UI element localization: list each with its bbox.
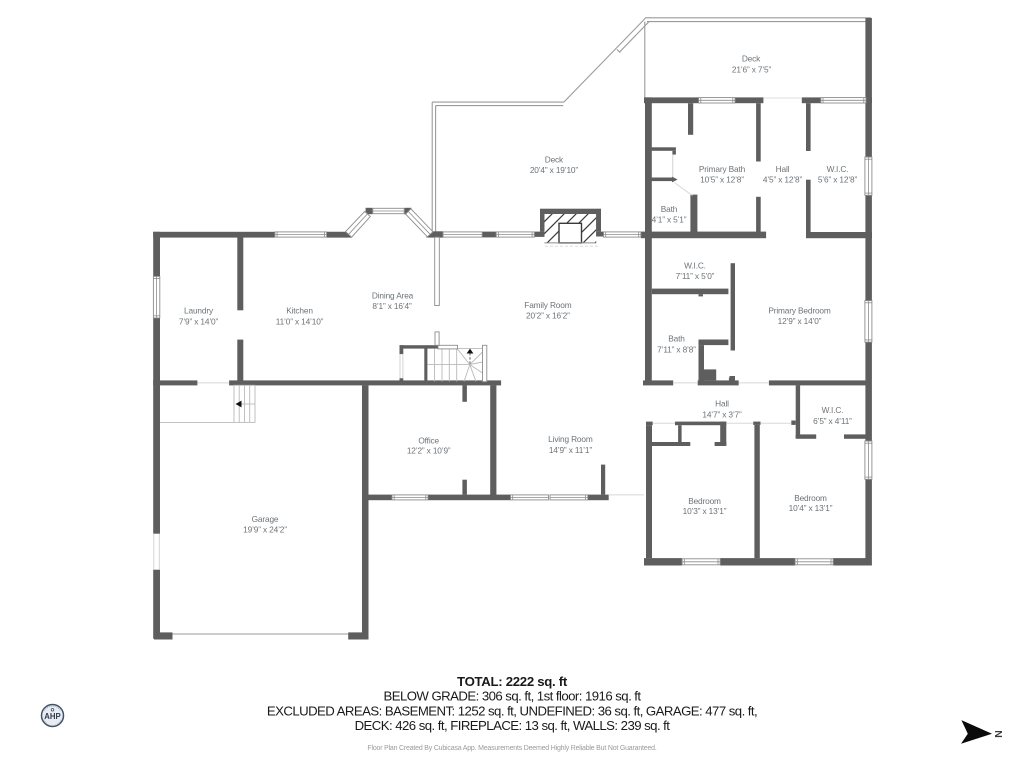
svg-text:14’7” x 3’7”: 14’7” x 3’7” xyxy=(702,409,742,419)
svg-text:8’1” x 16’4”: 8’1” x 16’4” xyxy=(372,301,412,311)
svg-text:10’3” x 13’1”: 10’3” x 13’1” xyxy=(683,506,727,516)
svg-text:W.I.C.: W.I.C. xyxy=(822,405,844,415)
svg-text:Floor Plan Created By Cubicasa: Floor Plan Created By Cubicasa App. Meas… xyxy=(367,745,656,752)
svg-text:Living Room: Living Room xyxy=(548,434,593,444)
svg-text:DECK: 426 sq. ft, FIREPLACE: 1: DECK: 426 sq. ft, FIREPLACE: 13 sq. ft, … xyxy=(355,718,671,733)
svg-text:Garage: Garage xyxy=(252,514,279,524)
svg-text:12’9” x 14’0”: 12’9” x 14’0” xyxy=(778,316,822,326)
svg-text:7’11” x 5’0”: 7’11” x 5’0” xyxy=(676,271,715,281)
svg-text:Bedroom: Bedroom xyxy=(794,493,827,503)
svg-text:W.I.C.: W.I.C. xyxy=(827,164,849,174)
svg-text:Hall: Hall xyxy=(776,164,790,174)
svg-text:19’9” x 24’2”: 19’9” x 24’2” xyxy=(243,524,287,534)
svg-text:N: N xyxy=(992,730,1004,738)
svg-text:4’5” x 12’8”: 4’5” x 12’8” xyxy=(763,175,803,185)
svg-text:14’9” x 11’1”: 14’9” x 11’1” xyxy=(549,445,592,455)
svg-text:Laundry: Laundry xyxy=(184,306,214,316)
svg-text:10’5” x 12’8”: 10’5” x 12’8” xyxy=(700,175,744,185)
svg-text:BELOW GRADE: 306 sq. ft, 1st f: BELOW GRADE: 306 sq. ft, 1st floor: 1916… xyxy=(383,689,641,704)
svg-text:Deck: Deck xyxy=(742,54,761,64)
svg-text:Primary Bath: Primary Bath xyxy=(699,164,746,174)
svg-text:Family Room: Family Room xyxy=(524,300,571,310)
svg-text:Bath: Bath xyxy=(661,204,678,214)
svg-text:11’0” x 14’10”: 11’0” x 14’10” xyxy=(276,316,324,326)
svg-text:EXCLUDED AREAS: BASEMENT: 1252: EXCLUDED AREAS: BASEMENT: 1252 sq. ft, U… xyxy=(267,704,757,719)
svg-text:Hall: Hall xyxy=(715,399,729,409)
svg-text:Office: Office xyxy=(418,436,439,446)
svg-text:21’6” x 7’5”: 21’6” x 7’5” xyxy=(732,64,772,74)
svg-text:Primary Bedroom: Primary Bedroom xyxy=(768,306,831,316)
svg-text:20’2” x 16’2”: 20’2” x 16’2” xyxy=(526,310,570,320)
svg-text:Dining Area: Dining Area xyxy=(372,290,414,300)
svg-text:TOTAL: 2222 sq. ft: TOTAL: 2222 sq. ft xyxy=(457,674,568,689)
svg-text:20’4” x 19’10”: 20’4” x 19’10” xyxy=(530,165,579,175)
svg-text:10’4” x 13’1”: 10’4” x 13’1” xyxy=(789,503,833,513)
svg-text:Deck: Deck xyxy=(545,154,564,164)
svg-text:7’9” x 14’0”: 7’9” x 14’0” xyxy=(179,316,219,326)
svg-text:Kitchen: Kitchen xyxy=(286,306,313,316)
svg-text:5’6” x 12’8”: 5’6” x 12’8” xyxy=(818,175,858,185)
svg-text:Bedroom: Bedroom xyxy=(688,496,721,506)
svg-text:12’2” x 10’9”: 12’2” x 10’9” xyxy=(407,445,451,455)
svg-text:6’5” x 4’11”: 6’5” x 4’11” xyxy=(813,416,852,426)
svg-text:AHP: AHP xyxy=(44,712,60,721)
svg-text:4’1” x 5’1”: 4’1” x 5’1” xyxy=(652,214,687,224)
svg-text:Bath: Bath xyxy=(668,334,685,344)
svg-text:W.I.C.: W.I.C. xyxy=(684,260,706,270)
svg-text:7’11” x 8’8”: 7’11” x 8’8” xyxy=(657,345,696,355)
